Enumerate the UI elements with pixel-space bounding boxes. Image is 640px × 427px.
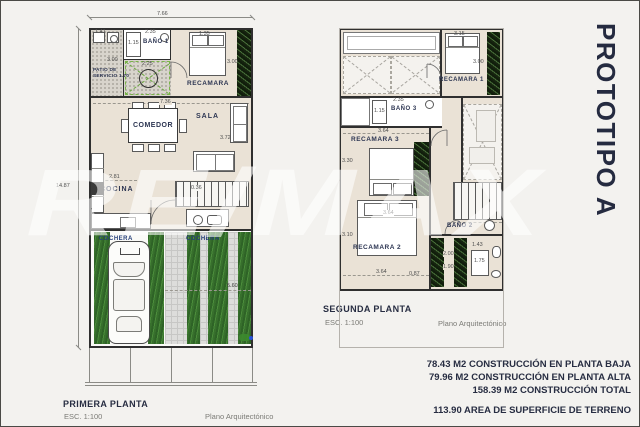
grass-strip: [187, 232, 200, 344]
pillow: [463, 36, 478, 47]
toilet-icon: [193, 215, 203, 225]
fence-rail: [85, 385, 257, 386]
dim-escalera: 0.36: [191, 185, 202, 191]
dim-recamara2-sup: 3.64: [383, 210, 394, 216]
summary-planta-baja: 78.43 M2 CONSTRUCCIÓN EN PLANTA BAJA: [311, 358, 631, 371]
dim-closet-b: 1.90: [443, 264, 454, 270]
dim-recamara-alto: 3.00: [227, 59, 238, 65]
car-rear-window: [116, 316, 142, 332]
dim-recamara2-alto: 3.10: [342, 232, 353, 238]
wall: [440, 30, 442, 96]
grass-strip: [208, 232, 228, 344]
wall: [341, 126, 442, 128]
dim-sala: 3.72: [220, 135, 231, 141]
paving-strip: [200, 232, 208, 344]
comedor-label: COMEDOR: [133, 122, 173, 129]
stairs: [453, 182, 502, 220]
sofa: [193, 151, 235, 172]
sink-icon: [491, 270, 501, 278]
car-roof: [113, 279, 145, 311]
sheet-title: PROTOTIPO A: [590, 23, 621, 233]
washer-icon: [107, 32, 119, 43]
chair: [132, 144, 144, 152]
sink-icon: [207, 215, 222, 225]
closet: [341, 98, 370, 126]
dim-cama1: 3.15: [454, 31, 465, 37]
void-area: [343, 56, 391, 94]
stove-icon: [91, 182, 104, 195]
planter-hatch: [237, 30, 251, 96]
wall: [431, 234, 502, 236]
fence-rail: [85, 382, 257, 383]
entry-door-arc: [151, 200, 175, 224]
balcony-inner-line: [347, 36, 436, 50]
void-x: [344, 57, 390, 93]
car-windshield: [113, 262, 145, 277]
dim-interior: 7.36: [159, 99, 172, 105]
stairs: [175, 181, 249, 207]
grass-strip: [238, 232, 251, 344]
door-arc: [431, 130, 447, 146]
planter-hatch: [487, 32, 500, 95]
blanket-line: [190, 47, 225, 48]
door-arc: [171, 62, 187, 78]
car-icon: [108, 241, 150, 344]
void-over-sala: [463, 104, 502, 180]
dining-table: COMEDOR: [128, 108, 178, 143]
dim-recamara3-ancho: 3.64: [377, 128, 390, 134]
recamara2-label: RECAMARA 2: [353, 244, 401, 251]
wall: [91, 96, 251, 98]
fence-post: [171, 348, 172, 382]
dim-recamara1: 3.00: [473, 59, 484, 65]
sofa-cushion: [233, 106, 247, 125]
washer-drum-icon: [110, 35, 118, 43]
bed: [189, 32, 226, 76]
dim-cocina: 2.81: [108, 174, 121, 180]
patio-servicio-label2: SERVICIO 1.70: [93, 74, 129, 79]
fence-post: [130, 348, 131, 382]
bano3-label: BAÑO 3: [391, 106, 417, 112]
patio-servicio-label: PATIO DE: [93, 68, 117, 73]
dim-recamara3-alto: 3.30: [342, 158, 353, 164]
ghost-sofa: [476, 110, 496, 142]
dim-patio-arbol: 2.25: [142, 61, 153, 67]
summary-total: 158.39 M2 CONSTRUCCIÓN TOTAL: [311, 384, 631, 397]
pillow: [393, 183, 412, 195]
dim-closet-a: 2.00: [443, 251, 454, 257]
chair: [148, 144, 160, 152]
dim-bano2-a: 1.43: [472, 242, 483, 248]
car-hood-detail: [120, 248, 140, 255]
dim-bano3: 2.35: [393, 97, 404, 103]
dim-lot-depth: 14.87: [55, 183, 71, 189]
closet-hatch: [454, 238, 467, 287]
dim-patio-ancho: 1.41: [95, 29, 106, 35]
fence-post: [252, 348, 253, 382]
summary-terreno: 113.90 AREA DE SUPERFICIE DE TERRENO: [311, 404, 631, 417]
pillow: [373, 183, 392, 195]
pillow: [208, 35, 224, 46]
cochera-izq-label: COCHERA: [99, 236, 133, 242]
sofa-cushion: [233, 124, 247, 142]
sink-icon: [425, 100, 434, 109]
logo-dot: [249, 336, 253, 340]
area-summary: 78.43 M2 CONSTRUCCIÓN EN PLANTA BAJA 79.…: [311, 358, 631, 417]
closet-hatch: [431, 238, 444, 287]
balcony-slab: [343, 32, 440, 54]
sala-label: SALA: [196, 113, 219, 120]
bed: [369, 148, 414, 196]
dim-bano2-b: 1.75: [474, 258, 485, 264]
bed: [445, 33, 480, 74]
sofa: [230, 103, 248, 143]
dim-patio-alto: 3.00: [107, 57, 118, 63]
summary-planta-alta: 79.96 M2 CONSTRUCCIÓN EN PLANTA ALTA: [311, 371, 631, 384]
plan1-doc-type: Plano Arquitectónico: [205, 412, 273, 421]
architectural-sheet: 7.66 14.87 1.41 3.00 PATIO DE SERVICIO 1…: [0, 0, 640, 427]
dimension-line-left: [78, 28, 79, 348]
blanket-line: [370, 179, 413, 180]
fence-post: [89, 348, 90, 382]
dim-cochera: 5.60: [227, 283, 238, 289]
door-arc: [427, 64, 441, 78]
wall: [91, 229, 251, 231]
pillow: [448, 36, 463, 47]
toilet-icon: [492, 246, 501, 258]
plan1-scale: ESC. 1:100: [64, 412, 102, 421]
half-bath: [186, 209, 229, 227]
chair: [164, 144, 176, 152]
grass-strip: [148, 232, 164, 344]
recamara3-label: RECAMARA 3: [351, 136, 399, 143]
sink-icon: [484, 220, 495, 231]
closet-hatch: [414, 142, 429, 196]
fence-post: [212, 348, 213, 382]
kitchen-counter-bottom: [91, 213, 151, 229]
sofa-cushion: [215, 154, 234, 171]
cochera-der-label: COCHERA: [186, 236, 220, 242]
primera-planta-plan: 1.41 3.00 PATIO DE SERVICIO 1.70 1.15 2.…: [89, 28, 253, 348]
ghost-sofa: [469, 147, 495, 164]
recamara1-label: RECAMARA 1: [439, 77, 484, 83]
counter-divider: [92, 196, 104, 197]
dim-recamara2-inf: 3.64: [375, 269, 388, 275]
plan1-title: PRIMERA PLANTA: [63, 399, 148, 409]
wall: [461, 98, 463, 182]
dim-patio-inf: 0.87: [409, 271, 420, 277]
blanket-line: [358, 217, 416, 218]
cocina-label: COCINA: [100, 186, 134, 193]
tree-icon: [139, 69, 158, 88]
sink-icon: [120, 217, 136, 228]
dimension-line-top: [89, 17, 253, 18]
blanket-line: [446, 47, 479, 48]
bano2-label: BAÑO 2: [447, 223, 473, 229]
dim-cama: 1.35: [199, 31, 210, 37]
dim-regadera: 1.15: [128, 40, 139, 46]
dim-regadera3: 1.15: [374, 108, 385, 114]
recamara-label: RECAMARA: [187, 80, 229, 87]
sofa-cushion: [196, 154, 216, 171]
counter-divider: [92, 168, 104, 169]
paving-strip: [165, 232, 187, 344]
dim-guide: [165, 290, 251, 291]
chair: [179, 119, 187, 133]
dim-bano1: 2.35: [145, 29, 156, 35]
dim-lot-width: 7.66: [156, 11, 169, 17]
bano1-label: BAÑO 1: [143, 39, 169, 45]
